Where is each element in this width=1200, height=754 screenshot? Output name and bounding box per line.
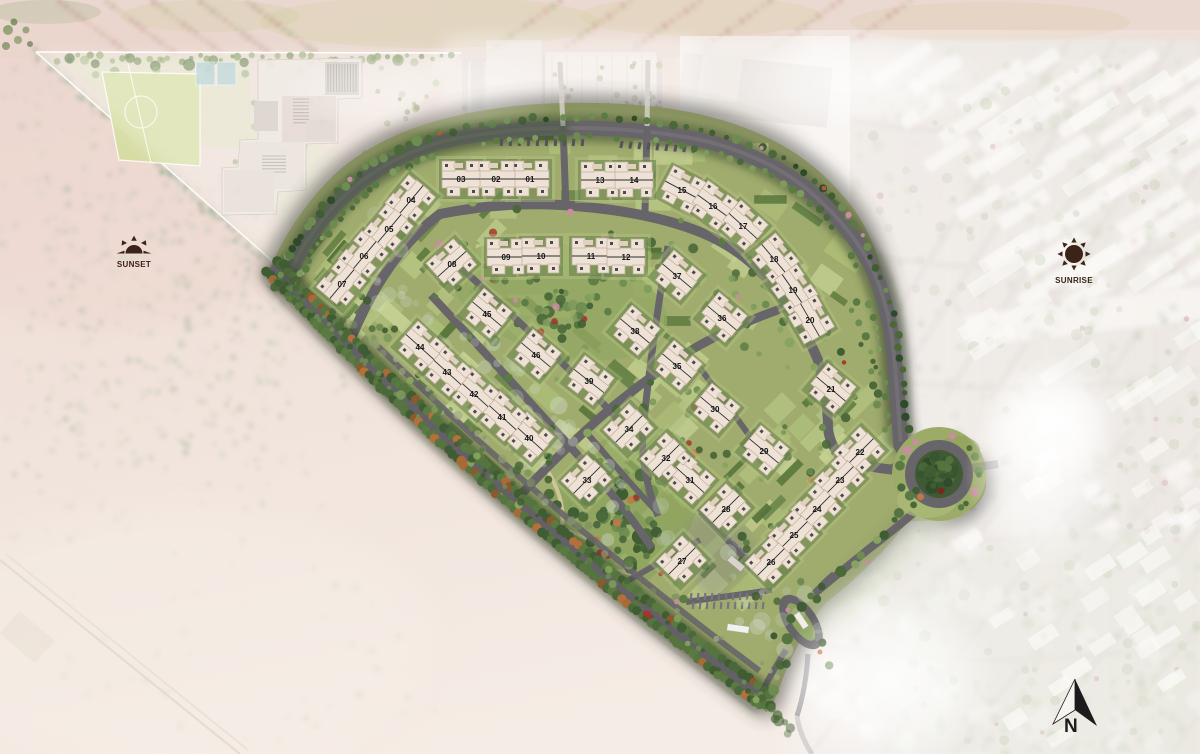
svg-text:30: 30: [711, 405, 720, 414]
svg-text:18: 18: [770, 255, 779, 264]
svg-text:08: 08: [448, 260, 457, 269]
svg-text:24: 24: [813, 505, 822, 514]
svg-text:10: 10: [537, 252, 546, 261]
svg-text:19: 19: [789, 286, 798, 295]
svg-text:05: 05: [385, 225, 394, 234]
svg-text:07: 07: [338, 280, 347, 289]
svg-text:37: 37: [673, 272, 682, 281]
svg-text:33: 33: [583, 476, 592, 485]
svg-text:N: N: [1064, 716, 1078, 737]
svg-text:26: 26: [767, 558, 776, 567]
svg-text:SUNRISE: SUNRISE: [1055, 276, 1093, 285]
svg-text:15: 15: [678, 186, 687, 195]
svg-text:29: 29: [760, 447, 769, 456]
svg-text:35: 35: [673, 362, 682, 371]
svg-text:28: 28: [722, 505, 731, 514]
svg-text:02: 02: [492, 175, 501, 184]
svg-text:46: 46: [532, 351, 541, 360]
svg-text:13: 13: [596, 176, 605, 185]
svg-text:34: 34: [625, 425, 634, 434]
svg-text:06: 06: [360, 252, 369, 261]
svg-text:20: 20: [806, 316, 815, 325]
svg-text:32: 32: [662, 454, 671, 463]
svg-text:23: 23: [836, 476, 845, 485]
svg-text:36: 36: [718, 314, 727, 323]
svg-text:17: 17: [739, 222, 748, 231]
svg-text:04: 04: [407, 196, 416, 205]
svg-text:27: 27: [678, 557, 687, 566]
svg-text:16: 16: [709, 202, 718, 211]
svg-text:39: 39: [585, 377, 594, 386]
svg-text:43: 43: [443, 368, 452, 377]
svg-text:SUNSET: SUNSET: [117, 260, 151, 269]
svg-text:14: 14: [630, 176, 639, 185]
svg-text:31: 31: [686, 476, 695, 485]
svg-text:41: 41: [498, 413, 507, 422]
svg-text:22: 22: [856, 448, 865, 457]
svg-text:44: 44: [416, 343, 425, 352]
svg-text:40: 40: [525, 434, 534, 443]
svg-text:21: 21: [827, 385, 836, 394]
svg-text:03: 03: [457, 175, 466, 184]
svg-text:12: 12: [622, 253, 631, 262]
svg-text:09: 09: [502, 253, 511, 262]
svg-text:38: 38: [631, 327, 640, 336]
svg-text:25: 25: [790, 531, 799, 540]
svg-text:11: 11: [587, 252, 596, 261]
svg-text:45: 45: [483, 310, 492, 319]
svg-text:42: 42: [470, 390, 479, 399]
svg-text:01: 01: [526, 175, 535, 184]
